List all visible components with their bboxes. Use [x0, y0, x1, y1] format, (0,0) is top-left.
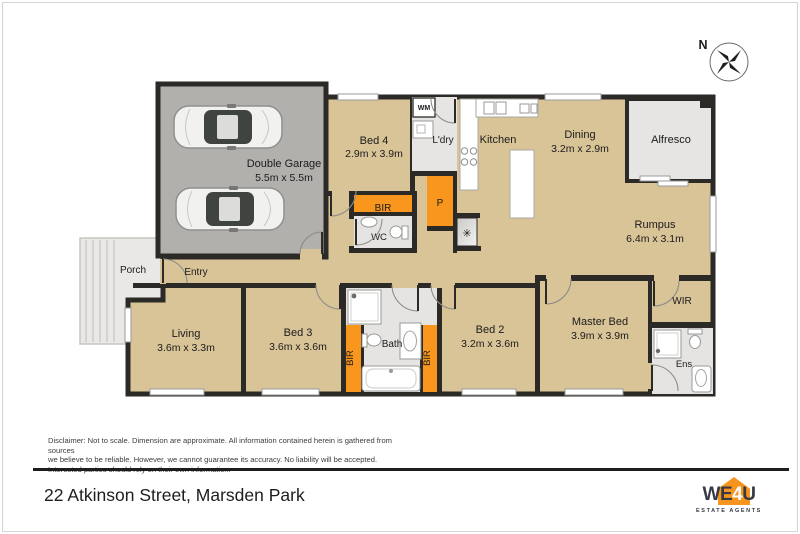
alfresco-label: Alfresco: [651, 134, 691, 146]
entry-label: Entry: [184, 267, 207, 278]
compass: N: [698, 38, 748, 81]
bed3-label: Bed 3: [284, 327, 313, 339]
ens-toilet-tank: [688, 329, 702, 334]
kitchen-bench: [460, 99, 478, 190]
room-laundry: WM L'dry: [412, 97, 457, 171]
kitchen-label: Kitchen: [480, 134, 517, 146]
bir-bed3-label: BIR: [345, 350, 356, 366]
logo-tagline: ESTATE AGENTS: [692, 508, 766, 514]
bir-bed4-label: BIR: [375, 203, 392, 214]
room-wc-nook: BIR WC: [349, 195, 412, 248]
logo-we: WE: [703, 484, 733, 505]
wir-label: WIR: [672, 296, 691, 307]
bed2-label: Bed 2: [476, 324, 505, 336]
garage-label: Double Garage: [247, 158, 322, 170]
ens-label: Ens: [676, 359, 693, 370]
basin-icon: [404, 331, 417, 351]
shower-head: [352, 294, 357, 299]
alfresco-post: [700, 97, 713, 108]
dining-label: Dining: [564, 129, 595, 141]
laundry-tub-icon: [413, 121, 433, 138]
living-label: Living: [172, 328, 201, 340]
master-dims: 3.9m x 3.9m: [571, 330, 629, 342]
toilet-tank: [362, 334, 367, 347]
bath-label: Bath: [382, 339, 403, 350]
wc-toilet-tank: [402, 226, 408, 239]
logo-wordmark: WE4U: [692, 484, 766, 506]
logo-u: U: [742, 484, 755, 505]
bed4-dims: 2.9m x 3.9m: [345, 148, 403, 160]
dining-dims: 3.2m x 2.9m: [551, 143, 609, 155]
compass-north-label: N: [698, 38, 707, 52]
wc-basin-icon: [361, 217, 377, 227]
bed4-label: Bed 4: [360, 135, 389, 147]
room-ens: Ens: [652, 328, 713, 394]
bathtub-tap: [389, 369, 393, 373]
bir-bed2-label: BIR: [422, 350, 433, 366]
living-dims: 3.6m x 3.3m: [157, 342, 215, 354]
ens-toilet-icon: [690, 336, 701, 349]
logo-four: 4: [732, 484, 742, 505]
master-label: Master Bed: [572, 316, 628, 328]
ens-shower-head: [656, 349, 660, 353]
toilet-icon: [367, 334, 381, 346]
ens-shower-icon: [654, 330, 681, 358]
disclaimer-line1: Disclaimer: Not to scale. Dimension are …: [48, 436, 408, 455]
room-alfresco: Alfresco: [627, 97, 713, 186]
footer-divider: [33, 468, 789, 471]
room-garage: Double Garage 5.5m x 5.5m: [158, 84, 326, 256]
bed3-dims: 3.6m x 3.6m: [269, 341, 327, 353]
ens-basin-icon: [696, 370, 707, 387]
rumpus-label: Rumpus: [635, 219, 676, 231]
laundry-label: L'dry: [432, 135, 453, 146]
pantry-label: P: [437, 198, 444, 209]
floor-plan: Porch Double Garage 5.5m x 5.5m Alfresco: [0, 0, 800, 432]
wc-door-gap: [349, 219, 354, 246]
room-bath: Bath BIR BIR: [345, 288, 437, 392]
garage-door-gap: [300, 249, 322, 260]
floorplan-page: Porch Double Garage 5.5m x 5.5m Alfresco: [0, 0, 800, 534]
property-address: 22 Atkinson Street, Marsden Park: [44, 485, 305, 506]
kitchen-island: [510, 150, 534, 218]
porch-label: Porch: [120, 265, 146, 276]
rumpus-dims: 6.4m x 3.1m: [626, 233, 684, 245]
agency-logo: WE4U ESTATE AGENTS: [692, 477, 766, 521]
wm-label: WM: [418, 105, 431, 112]
disclaimer-line2: we believe to be reliable. However, we c…: [48, 455, 408, 465]
bed2-dims: 3.2m x 3.6m: [461, 338, 519, 350]
sliding-door-icon: [658, 181, 688, 186]
fridge-symbol: ✳: [462, 228, 471, 240]
wc-toilet-icon: [390, 226, 402, 238]
garage-dims: 5.5m x 5.5m: [255, 172, 313, 184]
sliding-door-icon: [640, 176, 670, 181]
